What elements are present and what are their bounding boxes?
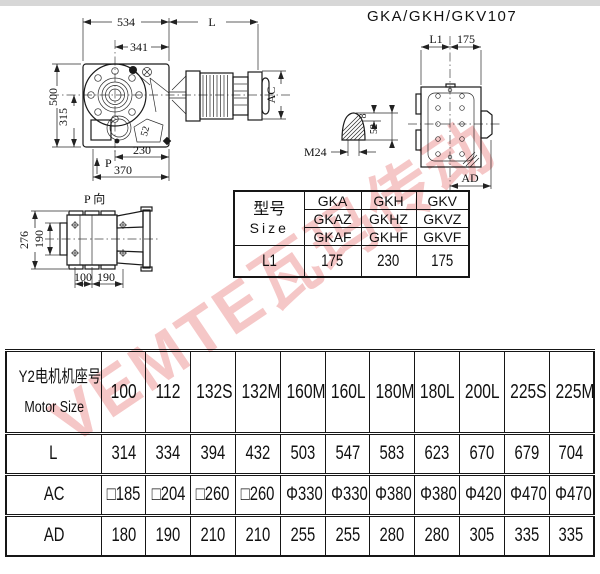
motor-cell: 432: [235, 434, 280, 475]
drain-plug-icon: [115, 139, 120, 144]
engineering-drawing: GKA/GKH/GKV107: [0, 0, 600, 345]
dim-276-label: 276: [17, 231, 31, 249]
dim-341-label: 341: [130, 40, 148, 54]
size-table-header-cell: 型号 Size: [234, 191, 304, 246]
dim-L: L: [169, 15, 258, 70]
size-table: 型号 Size GKA GKH GKV GKAZ GKHZ GKVZ GKAF …: [233, 190, 470, 278]
dim-100-label: 100: [74, 270, 92, 284]
eye-bolt-icon: [143, 68, 152, 77]
motor-cell: 334: [146, 434, 191, 475]
vent-plug-icon: [129, 66, 137, 74]
motor-cell: 679: [504, 434, 549, 475]
motor-row-L: L 314 334 394 432 503 547 583 623 670 67…: [6, 434, 594, 475]
dim-L1-label: L1: [429, 32, 442, 46]
gearbox-datasheet-page: GKA/GKH/GKV107: [0, 0, 600, 574]
size-table-l1-value: 230: [361, 246, 416, 278]
dim-190h-label: 190: [97, 270, 115, 284]
p-view-drawing: P 向: [17, 191, 160, 288]
motor-cell: 623: [415, 434, 460, 475]
motor-cell: 335: [549, 516, 594, 557]
motor-cell: 503: [280, 434, 325, 475]
motor-col-header: 225S: [504, 351, 549, 434]
motor-row-label: AC: [6, 475, 101, 516]
shaft-detail-drawing: 8 52 M24: [304, 105, 398, 159]
size-table-cell: GKAF: [304, 228, 361, 246]
drawing-title: GKA/GKH/GKV107: [367, 8, 517, 25]
motor-cell: 190: [146, 516, 191, 557]
motor-cell: Φ330: [325, 475, 370, 516]
size-table-cell: GKVF: [416, 228, 469, 246]
dim-52-shaft: 52: [369, 105, 392, 148]
motor-cell: 255: [280, 516, 325, 557]
motor-col-header: 225M: [549, 351, 594, 434]
dim-AC-label: AC: [264, 87, 278, 104]
dim-L1-175: L1 175: [421, 32, 481, 85]
size-table-cell: GKHF: [361, 228, 416, 246]
motor-table-header-cell: Y2电机机座号 Motor Size: [6, 351, 101, 434]
dim-534-label: 534: [117, 15, 135, 29]
motor-cell: 394: [191, 434, 236, 475]
motor-cell: 704: [549, 434, 594, 475]
size-table-l1-value: 175: [416, 246, 469, 278]
motor-cell: 255: [325, 516, 370, 557]
motor-col-header: 100: [101, 351, 146, 434]
size-table-header-en: Size: [235, 220, 304, 238]
motor-col-header: 180L: [415, 351, 460, 434]
motor-row-AD: AD 180 190 210 210 255 255 280 280 305 3…: [6, 516, 594, 557]
dim-370-label: 370: [114, 163, 132, 177]
motor-cell: 583: [370, 434, 415, 475]
dim-M24: M24: [304, 140, 376, 159]
motor-cell: 180: [101, 516, 146, 557]
motor-fins: [203, 75, 228, 117]
motor-cell: □260: [191, 475, 236, 516]
motor-cell: 210: [235, 516, 280, 557]
motor-cell: Φ380: [415, 475, 460, 516]
motor-row-label: AD: [6, 516, 101, 557]
dim-P-label: P: [105, 156, 112, 170]
dim-175-label: 175: [457, 32, 475, 46]
dim-52-shaft-label: 52: [369, 124, 380, 134]
motor-col-header: 132S: [191, 351, 236, 434]
dim-52-front-label: 52: [139, 125, 152, 138]
motor-cell: 280: [370, 516, 415, 557]
dim-230-label: 230: [133, 143, 151, 157]
motor-cell: 305: [460, 516, 505, 557]
motor-col-header: 160M: [280, 351, 325, 434]
motor-cell: □185: [101, 475, 146, 516]
size-table-l1-value: 175: [304, 246, 361, 278]
motor-cell: Φ470: [549, 475, 594, 516]
motor-cell: Φ420: [460, 475, 505, 516]
motor-row-label: L: [6, 434, 101, 475]
size-table-l1-label: L1: [234, 246, 304, 278]
motor-cell: □204: [146, 475, 191, 516]
motor-cell: 670: [460, 434, 505, 475]
size-table-cell: GKV: [416, 191, 469, 210]
thread-M24-label: M24: [304, 145, 327, 159]
motor-table-header-cn: Y2电机机座号: [19, 361, 102, 393]
plug-diamond-icon: [163, 137, 171, 145]
motor-col-header: 200L: [460, 351, 505, 434]
dim-AD-label: AD: [461, 171, 479, 185]
dim-315-label: 315: [56, 108, 70, 126]
motor-cell: 314: [101, 434, 146, 475]
size-table-cell: GKHZ: [361, 210, 416, 228]
motor-cell: 210: [191, 516, 236, 557]
motor-col-header: 132M: [235, 351, 280, 434]
motor-cell: Φ470: [504, 475, 549, 516]
size-table-cell: GKAZ: [304, 210, 361, 228]
dim-L-label: L: [208, 15, 215, 29]
dim-500: 500: [46, 64, 81, 147]
size-table-header-cn: 型号: [235, 200, 304, 220]
motor-outline: [186, 71, 269, 121]
motor-cell: Φ330: [280, 475, 325, 516]
dim-100-190: 100 190: [74, 267, 123, 288]
dim-341: 341: [115, 40, 169, 54]
motor-row-AC: AC □185 □204 □260 □260 Φ330 Φ330 Φ380 Φ3…: [6, 475, 594, 516]
dim-8-label: 8: [358, 114, 369, 119]
size-table-cell: GKA: [304, 191, 361, 210]
motor-col-header: 112: [146, 351, 191, 434]
motor-cell: 547: [325, 434, 370, 475]
motor-col-header: 160L: [325, 351, 370, 434]
dim-534: 534: [83, 15, 169, 61]
dim-P: P: [97, 156, 112, 174]
size-table-cell: GKH: [361, 191, 416, 210]
motor-col-header: 180M: [370, 351, 415, 434]
side-view-drawing: L1 175 AD: [408, 32, 500, 192]
dim-190v-label: 190: [32, 230, 46, 248]
dim-AD: AD: [450, 140, 491, 189]
motor-cell: 280: [415, 516, 460, 557]
motor-cell: 335: [504, 516, 549, 557]
motor-table-header-en: Motor Size: [24, 393, 84, 423]
motor-cell: Φ380: [370, 475, 415, 516]
dim-500-label: 500: [46, 88, 60, 106]
motor-table: Y2电机机座号 Motor Size 100 112 132S 132M 160…: [5, 349, 595, 557]
motor-cell: □260: [235, 475, 280, 516]
p-view-label: P 向: [84, 191, 105, 206]
front-view-drawing: 534 L 341 500: [46, 15, 292, 181]
size-table-cell: GKVZ: [416, 210, 469, 228]
